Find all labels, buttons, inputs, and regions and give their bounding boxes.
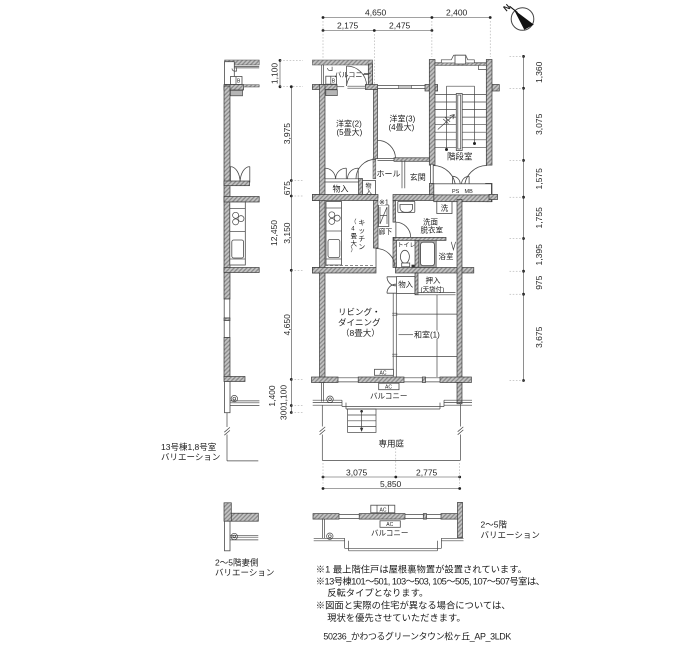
- svg-text:物: 物: [366, 182, 372, 190]
- svg-text:3,150: 3,150: [282, 222, 292, 244]
- svg-text:PS: PS: [452, 189, 460, 195]
- svg-text:(天袋付): (天袋付): [421, 285, 445, 294]
- svg-text:(4畳大): (4畳大): [389, 122, 415, 132]
- svg-text:バリエーション: バリエーション: [481, 530, 540, 540]
- svg-text:2〜5階: 2〜5階: [481, 520, 508, 530]
- svg-text:※13号棟101〜501, 103〜503, 105〜505: ※13号棟101〜501, 103〜503, 105〜505, 107〜507号…: [316, 575, 545, 586]
- svg-text:畳: 畳: [351, 232, 358, 240]
- svg-text:（: （: [351, 219, 357, 226]
- svg-text:2,475: 2,475: [389, 21, 411, 31]
- svg-text:脱衣室: 脱衣室: [421, 225, 444, 235]
- svg-text:ホール: ホール: [377, 169, 401, 178]
- svg-text:浴室: 浴室: [439, 251, 454, 261]
- svg-text:洋室(3): 洋室(3): [390, 114, 416, 124]
- svg-text:1,100: 1,100: [279, 385, 289, 407]
- svg-text:※1 最上階住戸は屋根裏物置が設置されています。: ※1 最上階住戸は屋根裏物置が設置されています。: [316, 564, 527, 575]
- svg-text:4,650: 4,650: [365, 8, 387, 18]
- svg-text:AC: AC: [385, 385, 392, 391]
- svg-text:ン: ン: [358, 244, 365, 251]
- svg-text:AC: AC: [380, 370, 387, 376]
- svg-text:5,850: 5,850: [380, 479, 402, 489]
- svg-text:2〜5階妻側: 2〜5階妻側: [215, 558, 258, 568]
- svg-text:3,075: 3,075: [534, 113, 544, 135]
- svg-text:2,775: 2,775: [416, 467, 438, 477]
- svg-text:）: ）: [351, 247, 357, 254]
- svg-text:和室(1): 和室(1): [414, 330, 440, 340]
- svg-text:AC: AC: [380, 507, 387, 513]
- svg-text:反転タイプとなります。: 反転タイプとなります。: [327, 588, 428, 598]
- svg-text:2,400: 2,400: [446, 8, 468, 18]
- svg-text:リビング・: リビング・: [338, 307, 381, 317]
- svg-text:(5畳大): (5畳大): [337, 127, 363, 137]
- svg-text:バルコニー: バルコニー: [370, 392, 407, 401]
- svg-text:50236_かわつるグリーンタウン松ヶ丘_AP_3LDK: 50236_かわつるグリーンタウン松ヶ丘_AP_3LDK: [323, 630, 511, 641]
- svg-text:300: 300: [279, 406, 289, 420]
- svg-text:バルコニー: バルコニー: [371, 529, 408, 538]
- svg-text:1,100: 1,100: [270, 63, 280, 85]
- svg-text:3,075: 3,075: [346, 467, 368, 477]
- svg-text:1,575: 1,575: [534, 168, 544, 190]
- svg-text:階段室: 階段室: [447, 152, 473, 162]
- svg-text:3,975: 3,975: [282, 123, 292, 145]
- svg-text:大: 大: [351, 239, 358, 248]
- svg-text:12,450: 12,450: [269, 220, 279, 246]
- svg-text:4,650: 4,650: [282, 314, 292, 336]
- svg-text:バリエーション: バリエーション: [161, 452, 220, 462]
- svg-text:1,400: 1,400: [267, 385, 277, 407]
- svg-text:現状を優先させていただきます。: 現状を優先させていただきます。: [327, 612, 466, 623]
- svg-text:チ: チ: [358, 235, 365, 243]
- svg-text:1,395: 1,395: [534, 244, 544, 266]
- svg-text:押入: 押入: [426, 275, 441, 285]
- svg-text:※図面と実際の住宅が異なる場合については、: ※図面と実際の住宅が異なる場合については、: [316, 600, 511, 611]
- svg-text:※1: ※1: [379, 199, 389, 206]
- svg-text:MB: MB: [465, 189, 474, 195]
- svg-text:バリエーション: バリエーション: [215, 567, 274, 577]
- svg-text:玄関: 玄関: [410, 172, 426, 182]
- svg-text:（8畳大）: （8畳大）: [341, 328, 380, 338]
- svg-text:975: 975: [534, 275, 544, 289]
- svg-text:専用庭: 専用庭: [379, 439, 405, 449]
- svg-text:13号棟1,8号室: 13号棟1,8号室: [161, 442, 217, 452]
- svg-text:洗: 洗: [441, 203, 449, 213]
- svg-text:キ: キ: [358, 220, 365, 227]
- svg-text:バルコニー: バルコニー: [335, 71, 370, 79]
- svg-text:物入: 物入: [333, 183, 349, 193]
- svg-text:物入: 物入: [398, 279, 413, 289]
- svg-text:廊下: 廊下: [379, 227, 393, 236]
- svg-text:AC: AC: [386, 522, 393, 528]
- svg-text:ッ: ッ: [358, 228, 365, 235]
- svg-text:1,755: 1,755: [534, 207, 544, 229]
- svg-text:1,360: 1,360: [534, 61, 544, 83]
- svg-text:2,175: 2,175: [337, 21, 359, 31]
- svg-text:3,675: 3,675: [534, 326, 544, 348]
- svg-text:洋室(2): 洋室(2): [336, 119, 362, 129]
- svg-text:トイレ: トイレ: [398, 243, 416, 249]
- svg-text:675: 675: [282, 181, 292, 195]
- svg-text:ダイニング: ダイニング: [338, 318, 381, 328]
